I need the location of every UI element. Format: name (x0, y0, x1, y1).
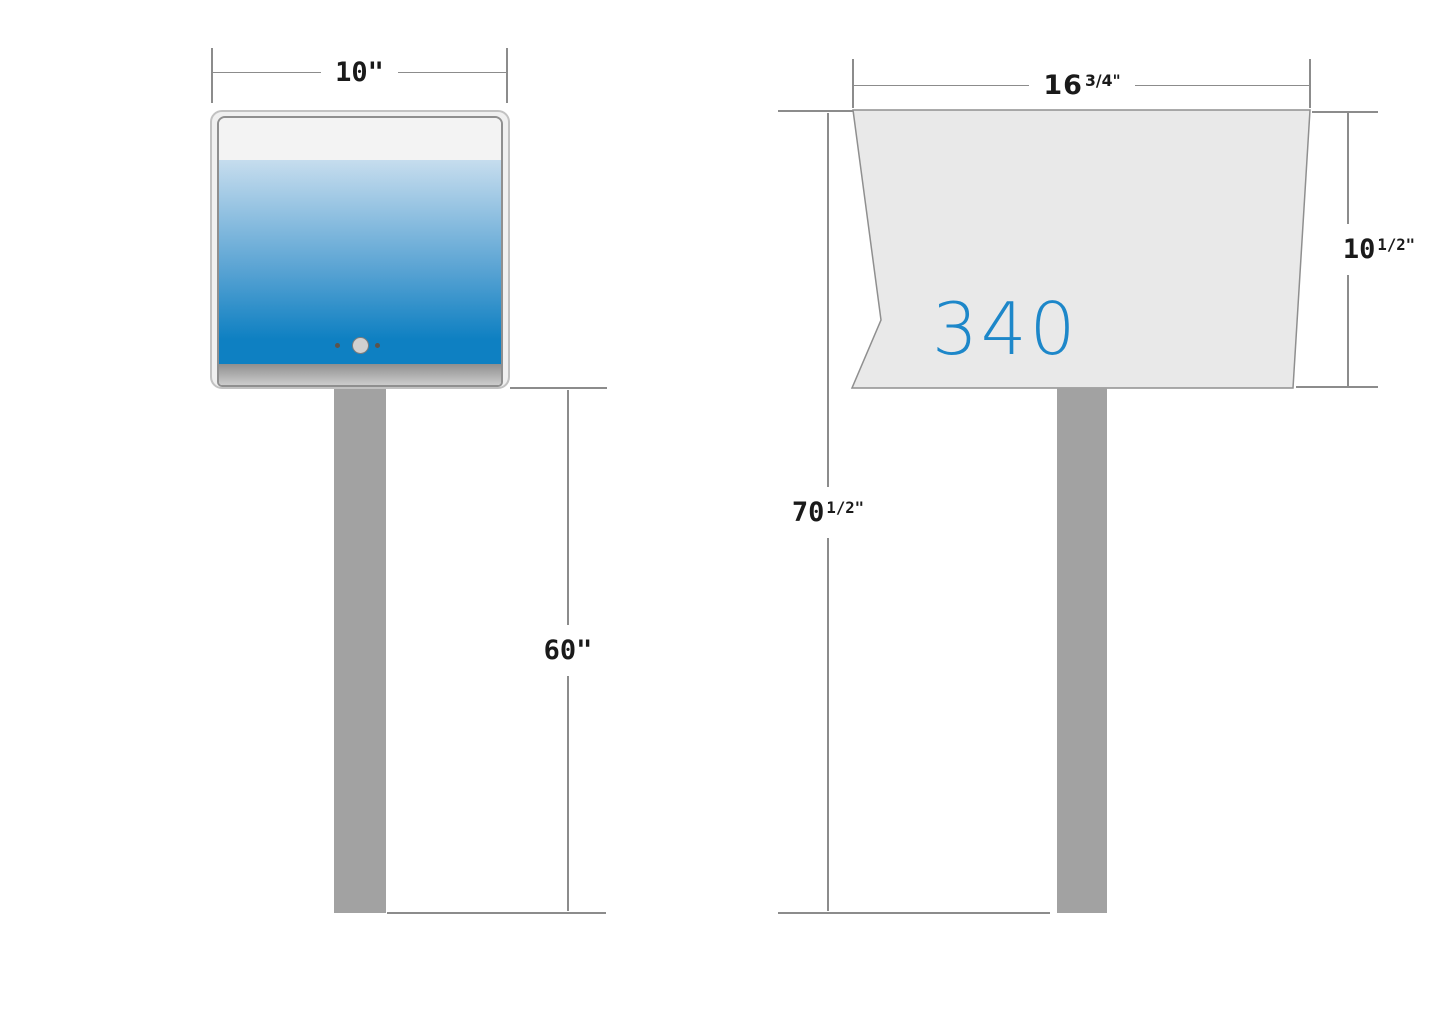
dimension-line (827, 538, 829, 912)
dimension-line (1347, 275, 1349, 386)
rivet-dot-left (335, 343, 340, 348)
side-total-height-fraction: 1/2" (826, 498, 864, 517)
mailbox-door (219, 160, 501, 364)
extension-line (778, 912, 1050, 914)
extension-line (510, 387, 607, 389)
extension-line (1296, 386, 1378, 388)
side-depth-dimension: 101/2" (1303, 113, 1393, 386)
rivet-dot-right (375, 343, 380, 348)
dimension-line (1135, 85, 1310, 87)
dimension-line (854, 85, 1029, 87)
dimension-line (1347, 113, 1349, 224)
front-width-label: 10" (321, 59, 398, 86)
mailbox-side-view (845, 108, 1315, 390)
mailbox-post-side (1057, 388, 1107, 913)
side-total-height-value: 70 (792, 497, 825, 528)
side-depth-fraction: 1/2" (1377, 235, 1415, 254)
dimension-line (567, 676, 569, 911)
mailbox-front-panel (217, 116, 503, 387)
side-width-label: 163/4" (1029, 72, 1134, 99)
side-depth-value: 10 (1343, 234, 1376, 265)
front-height-label: 60" (540, 625, 597, 676)
house-number: 340 (932, 299, 1078, 359)
side-width-fraction: 3/4" (1085, 71, 1121, 90)
mailbox-side-body (852, 110, 1310, 388)
mailbox-front-view (210, 110, 510, 389)
extension-line (387, 912, 606, 914)
side-width-value: 16 (1043, 70, 1083, 101)
mailbox-dimension-diagram: 10" 60" (0, 0, 1445, 1022)
side-width-dimension: 163/4" (854, 72, 1310, 99)
side-depth-label: 101/2" (1339, 224, 1419, 275)
side-total-height-dimension: 701/2" (783, 113, 873, 911)
mailbox-lid-band (219, 118, 501, 160)
dimension-line (398, 72, 507, 74)
mailbox-post-front (334, 389, 386, 913)
mailbox-base-strip (219, 364, 501, 385)
dimension-line (212, 72, 321, 74)
extension-line (778, 110, 853, 112)
front-height-dimension: 60" (523, 390, 613, 911)
side-total-height-label: 701/2" (788, 487, 868, 538)
dimension-line (567, 390, 569, 625)
latch-knob-icon (352, 337, 369, 354)
dimension-line (827, 113, 829, 487)
front-width-dimension: 10" (212, 59, 507, 86)
